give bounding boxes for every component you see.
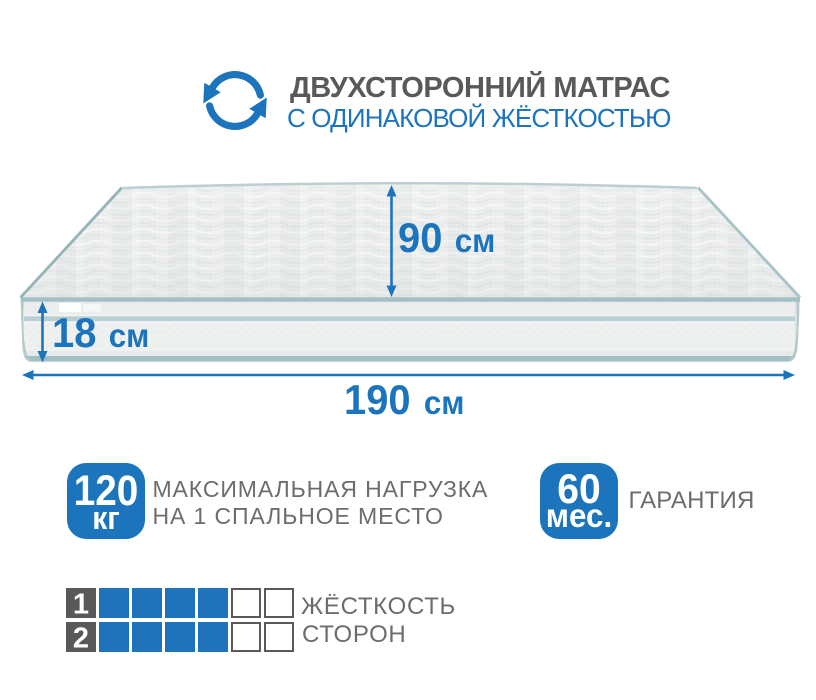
svg-text:1: 1: [73, 589, 89, 621]
svg-text:2: 2: [73, 623, 89, 655]
